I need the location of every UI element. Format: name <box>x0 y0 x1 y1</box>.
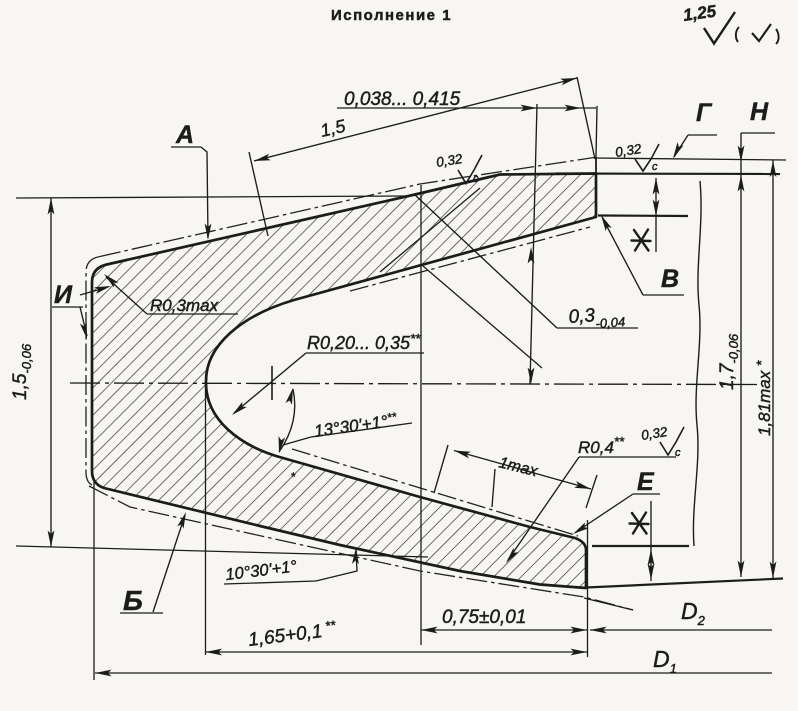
svg-text:R0,3max: R0,3max <box>150 296 219 315</box>
svg-text:1,81max *: 1,81max * <box>753 360 774 436</box>
svg-text:*: * <box>291 470 296 484</box>
svg-text:0,32: 0,32 <box>614 141 643 160</box>
svg-text:c: c <box>473 173 479 185</box>
svg-text:Б: Б <box>123 585 143 616</box>
svg-text:1max: 1max <box>497 454 540 480</box>
svg-text:Исполнение 1: Исполнение 1 <box>331 7 452 24</box>
svg-text:0,32: 0,32 <box>640 424 669 443</box>
svg-text:1,7-0,06: 1,7-0,06 <box>717 333 741 390</box>
svg-text:Н: Н <box>750 98 769 126</box>
svg-text:Е: Е <box>637 468 655 496</box>
svg-text:0,75±0,01: 0,75±0,01 <box>442 607 526 628</box>
svg-text:1,5-0,06: 1,5-0,06 <box>10 343 34 400</box>
svg-text:c: c <box>675 447 681 459</box>
svg-text:D1: D1 <box>653 646 677 676</box>
svg-text:А: А <box>175 121 194 149</box>
svg-text:R0,4**: R0,4** <box>578 434 625 457</box>
svg-text:1,5: 1,5 <box>318 116 348 141</box>
svg-text:Г: Г <box>696 99 713 127</box>
svg-text:c: c <box>652 161 658 173</box>
svg-text:И: И <box>54 281 73 309</box>
svg-text:D2: D2 <box>681 598 706 628</box>
svg-text:1,65+0,1 **: 1,65+0,1 ** <box>247 617 338 651</box>
svg-text:13°30'+1°**: 13°30'+1°** <box>313 410 399 441</box>
svg-text:R0,20... 0,35**: R0,20... 0,35** <box>307 331 421 353</box>
svg-text:0,038... 0,415: 0,038... 0,415 <box>344 89 461 110</box>
svg-text:В: В <box>661 265 679 293</box>
svg-text:0,32: 0,32 <box>435 151 464 170</box>
svg-text:10°30'+1°: 10°30'+1° <box>224 557 298 584</box>
svg-text:1,25: 1,25 <box>682 1 718 24</box>
